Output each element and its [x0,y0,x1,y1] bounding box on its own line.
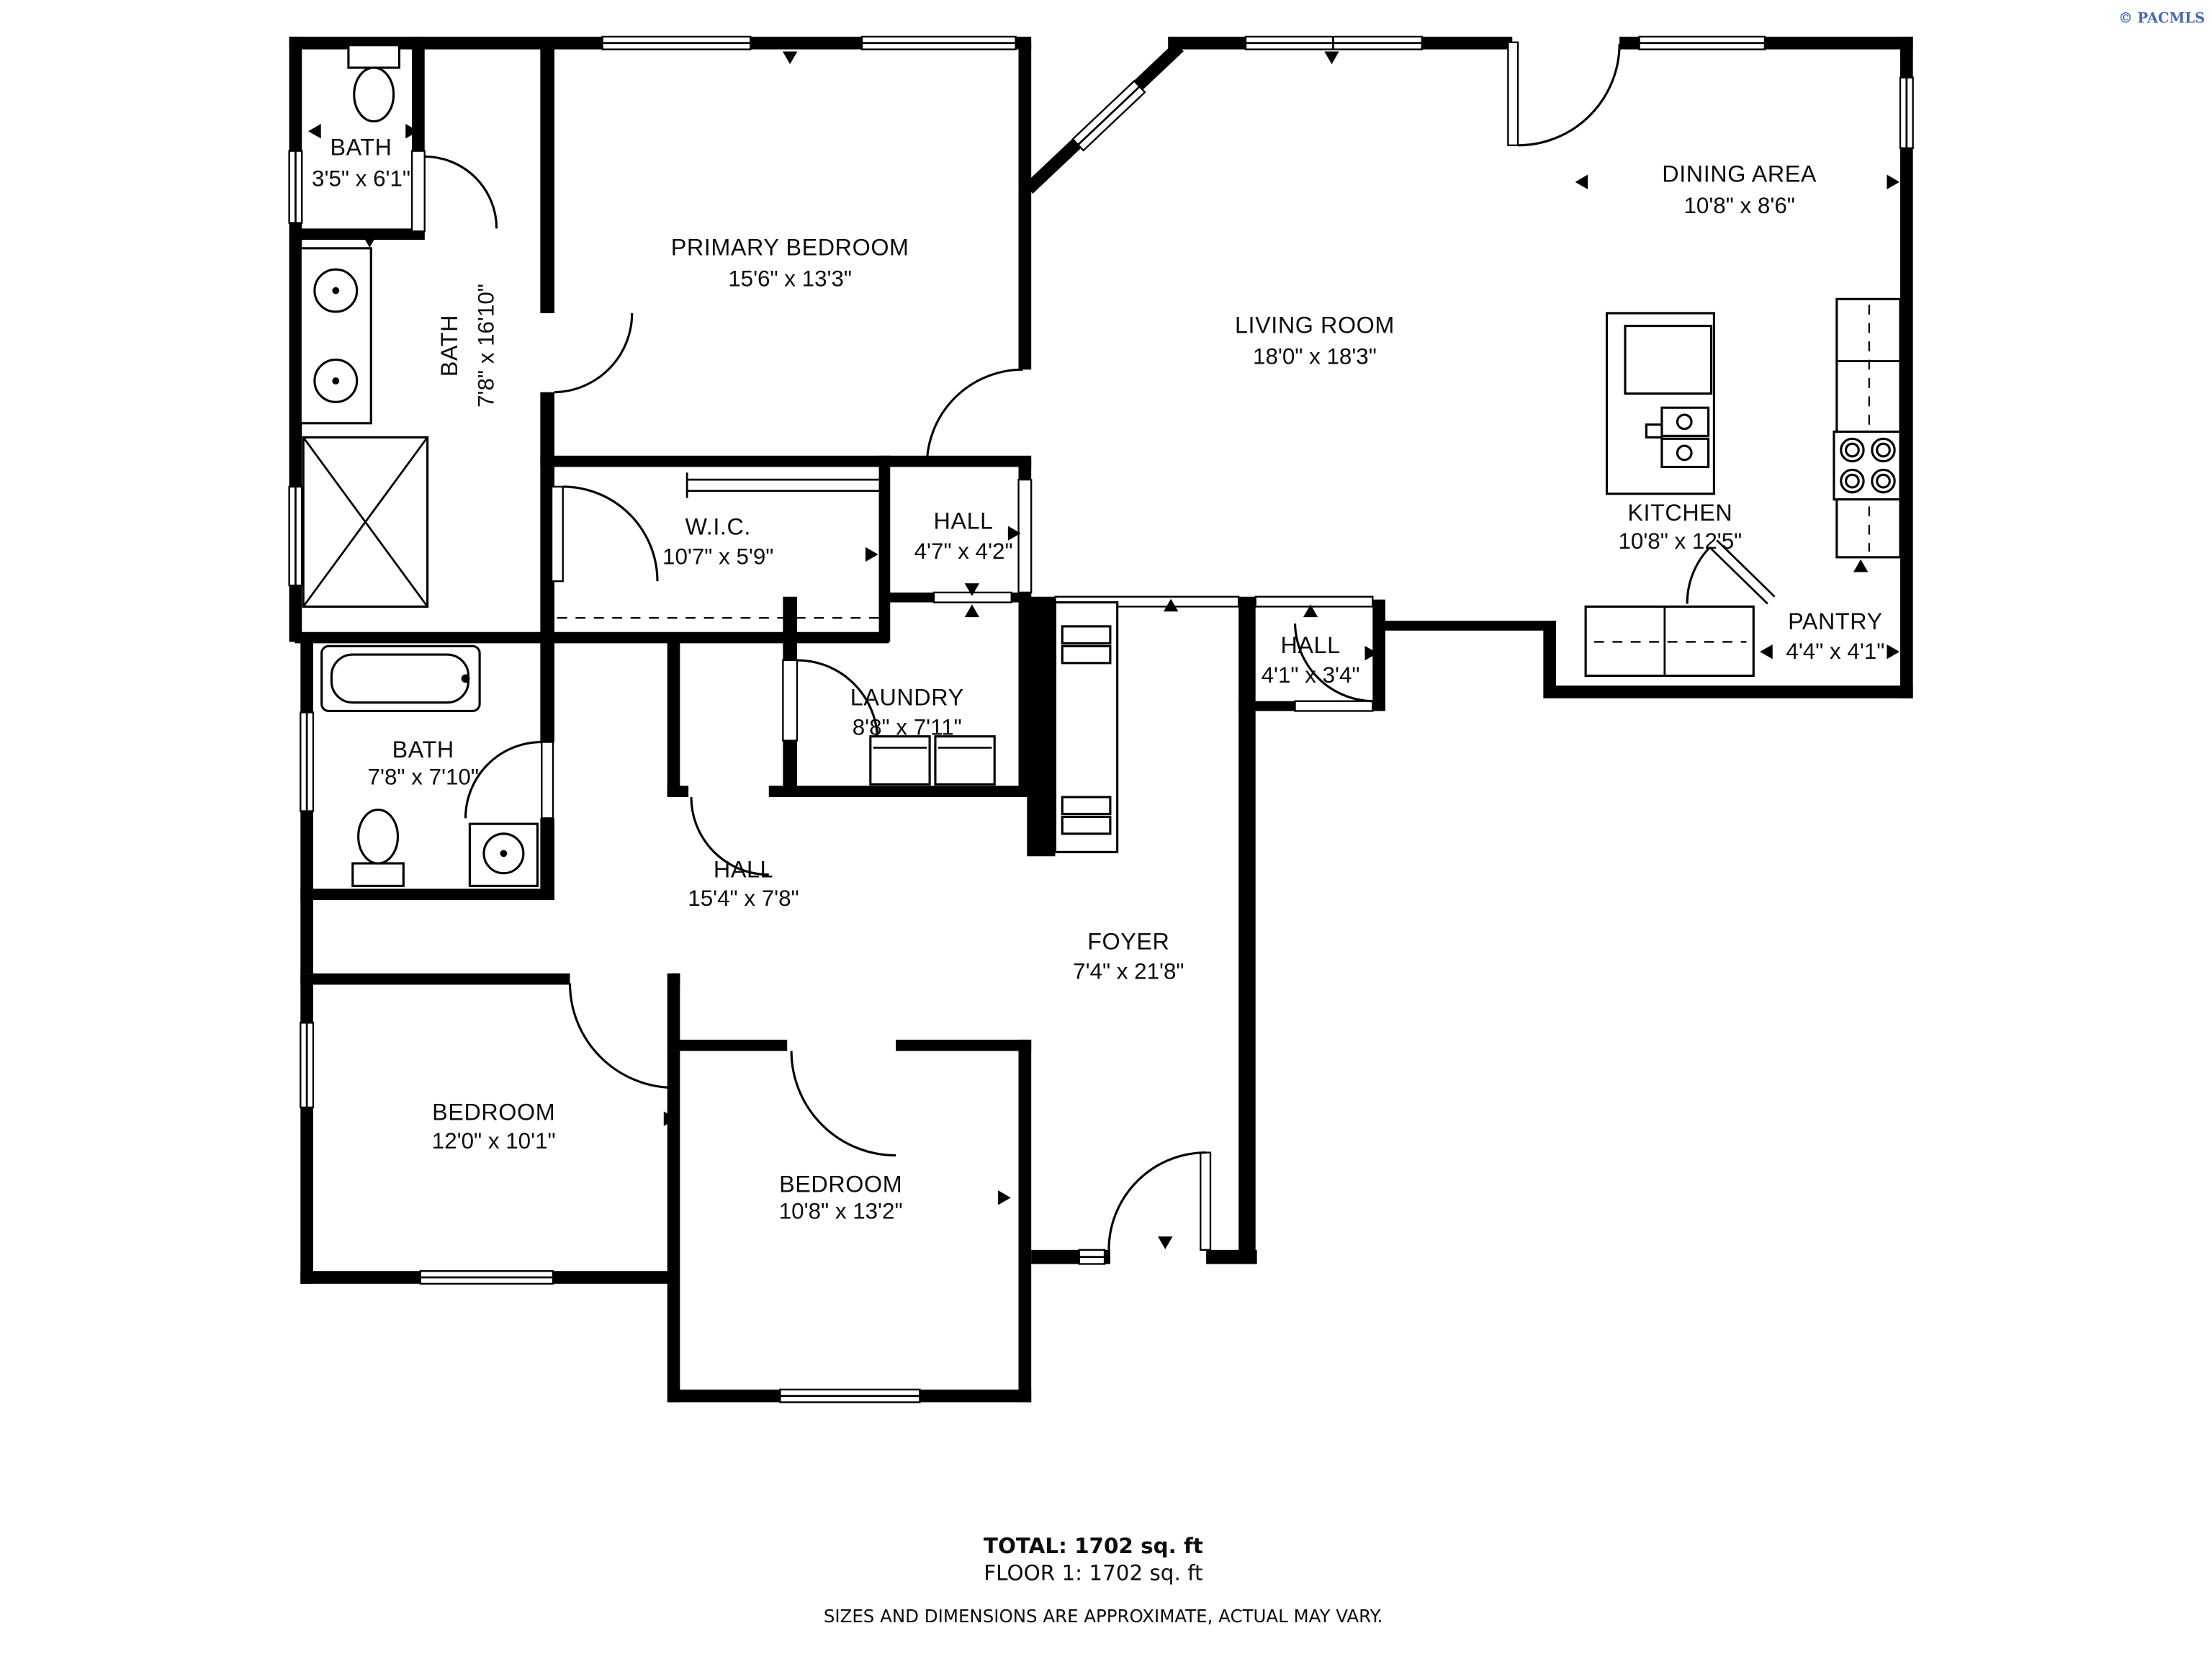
floor-plan-drawing: BATH 3'5" x 6'1" BATH 7'8" x 16'10" PRIM… [0,0,2212,1659]
stove [1834,432,1900,500]
toilet [349,45,400,122]
room-dims-hall-3: 15'4" x 7'8" [688,886,799,911]
kitchen-counter [1837,299,1900,557]
window [862,37,1016,50]
door [570,984,675,1088]
room-label-laundry: LAUNDRY [850,685,964,711]
chamfer-wall [1028,47,1179,189]
room-label-bedroom-3: BEDROOM [779,1172,902,1197]
window [300,1022,313,1107]
room-label-wic: W.I.C. [685,514,750,540]
sidelight-window [1079,1250,1105,1264]
toilet [353,810,404,886]
room-dims-pantry: 4'4" x 4'1" [1786,639,1884,664]
window [603,37,751,50]
room-label-hall-3: HALL [714,857,773,883]
room-label-kitchen: KITCHEN [1627,500,1732,526]
room-label-bath-primary: BATH [436,315,462,377]
room-dims-bath-lower: 7'8" x 7'10" [368,764,479,789]
front-door [1109,1153,1210,1250]
room-label-primary-bedroom: PRIMARY BEDROOM [671,235,909,261]
window [289,151,302,223]
room-label-bedroom-2: BEDROOM [432,1100,555,1125]
bathtub [322,646,480,711]
room-dims-kitchen: 10'8" x 12'5" [1618,529,1742,554]
door [927,369,1022,465]
copyright-watermark: © PACMLS [2118,9,2205,26]
double-vanity [300,248,371,423]
room-label-dining-area: DINING AREA [1662,161,1817,187]
coat-closet [1055,603,1117,853]
room-label-pantry: PANTRY [1788,608,1883,634]
room-label-living-room: LIVING ROOM [1235,312,1395,338]
total-area-text: TOTAL: 1702 sq. ft [984,1534,1203,1558]
footer: TOTAL: 1702 sq. ft FLOOR 1: 1702 sq. ft … [824,1534,1383,1627]
room-dims-bedroom-2: 12'0" x 10'1" [432,1128,556,1154]
room-label-bath-lower: BATH [392,737,454,763]
dryer [935,737,994,785]
window [1246,37,1422,50]
room-dims-bath-small: 3'5" x 6'1" [312,166,410,192]
room-label-foyer: FOYER [1087,929,1169,955]
room-label-hall-2: HALL [1280,632,1340,658]
sink [469,824,537,886]
room-dims-foyer: 7'4" x 21'8" [1073,959,1184,984]
door [1508,42,1619,145]
door [791,1051,896,1156]
door [554,313,632,392]
disclaimer-text: SIZES AND DIMENSIONS ARE APPROXIMATE, AC… [824,1606,1383,1627]
window [300,712,313,811]
shower [303,437,427,606]
room-dims-hall-1: 4'7" x 4'2" [914,539,1013,564]
room-dims-hall-2: 4'1" x 3'4" [1262,662,1360,688]
window [780,1390,920,1403]
door [552,487,657,581]
room-dims-dining-area: 10'8" x 8'6" [1683,193,1794,218]
room-label-bath-small: BATH [330,135,392,161]
window [421,1271,553,1284]
window [1900,78,1913,148]
room-dims-bedroom-3: 10'8" x 13'2" [779,1199,903,1224]
room-dims-laundry: 8'8" x 7'11" [853,715,962,740]
window [289,487,302,585]
window [1640,37,1765,50]
washer [871,737,930,785]
floor-area-text: FLOOR 1: 1702 sq. ft [984,1560,1202,1585]
nook-counter [1586,606,1753,675]
kitchen-island [1607,313,1714,494]
room-label-hall-1: HALL [934,508,994,534]
room-dims-wic: 10'7" x 5'9" [662,544,773,570]
room-dims-living-room: 18'0" x 18'3" [1253,343,1377,369]
floor-plan-page: BATH 3'5" x 6'1" BATH 7'8" x 16'10" PRIM… [0,0,2212,1659]
door [412,151,497,232]
room-dims-bath-primary: 7'8" x 16'10" [474,284,499,408]
room-dims-primary-bedroom: 15'6" x 13'3" [728,266,852,292]
